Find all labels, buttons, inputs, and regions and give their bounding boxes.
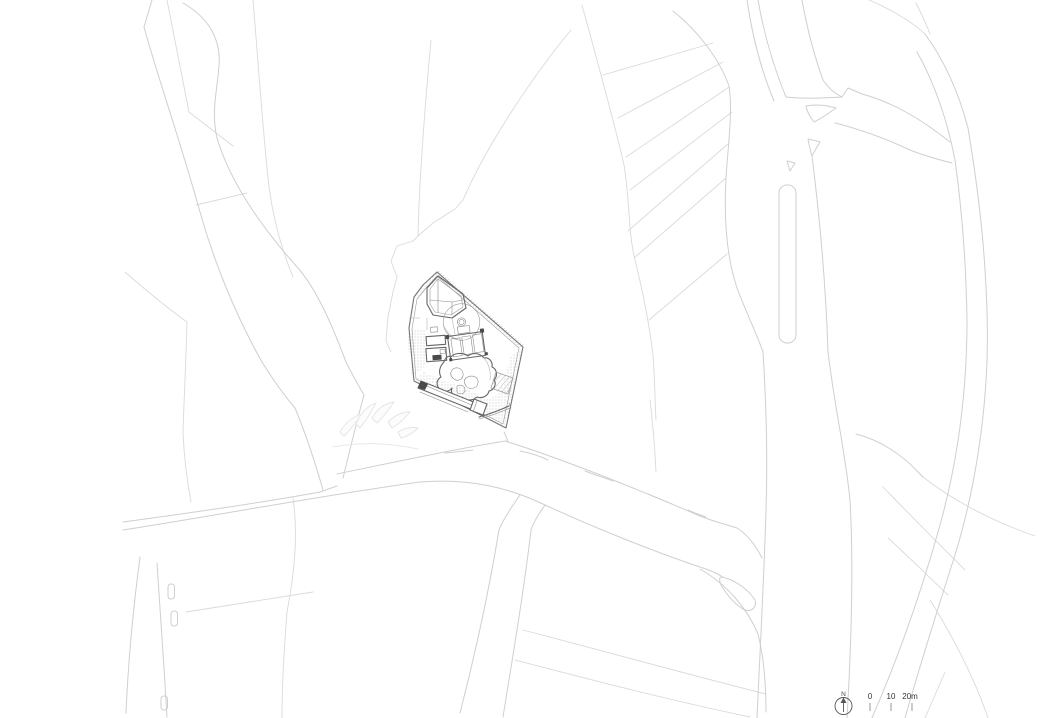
scale-label-20m: 20m — [902, 692, 918, 701]
site-plan-sheet: N 0 10 20m — [0, 0, 1050, 718]
road-network — [123, 0, 987, 718]
tree-icon — [457, 318, 465, 326]
north-arrow: N — [835, 691, 852, 715]
site-plan — [408, 272, 523, 428]
entry-planting — [333, 402, 418, 449]
traffic-island — [806, 105, 836, 122]
scale-bar: 0 10 20m — [868, 692, 918, 711]
north-label: N — [841, 691, 846, 698]
corner-island — [720, 577, 756, 610]
northwest-building-block — [409, 276, 466, 334]
site-plan-drawing: N 0 10 20m — [0, 0, 1050, 718]
west-wing — [424, 326, 446, 361]
scale-label-10: 10 — [887, 692, 896, 701]
median-island — [779, 185, 796, 343]
traffic-island — [808, 139, 820, 156]
traffic-island — [787, 161, 795, 171]
scale-label-0: 0 — [868, 692, 873, 701]
